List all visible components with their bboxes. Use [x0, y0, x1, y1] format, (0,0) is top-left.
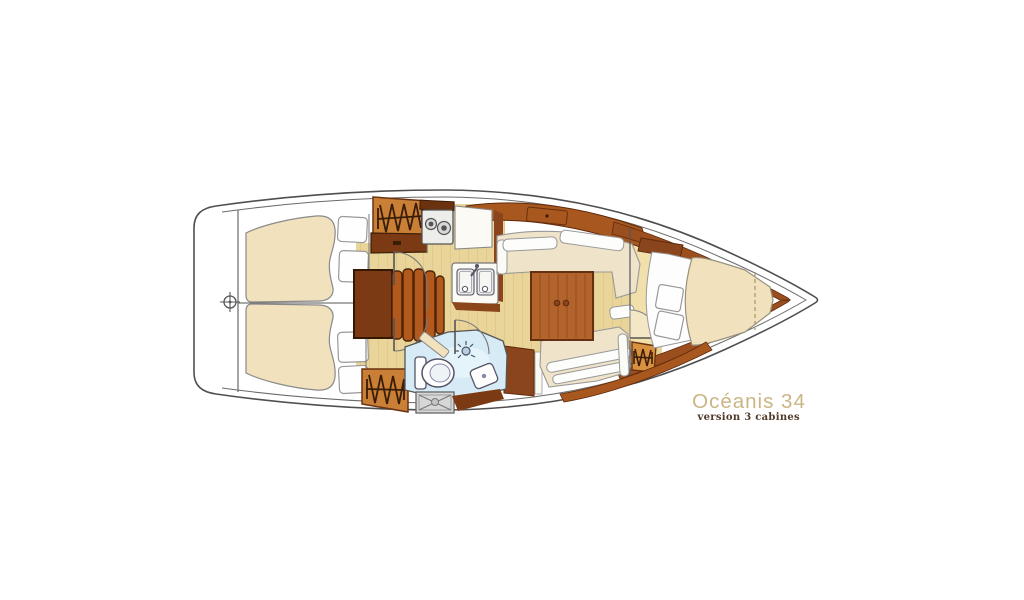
- cabinet-starboard-aft: [504, 346, 534, 396]
- wardrobe-starboard-aft: [362, 369, 408, 412]
- model-title: Océanis 34: [692, 390, 806, 413]
- settee-port-back-cushion: [503, 237, 558, 252]
- stove-icon: [422, 210, 453, 244]
- deck-hatch-icon: [416, 392, 454, 413]
- toilet-icon: [415, 357, 454, 389]
- branding: Océanis 34 version 3 cabines: [692, 390, 806, 423]
- aft-berth-starboard: [246, 304, 335, 390]
- boat-floor-plan-page: Océanis 34 version 3 cabines: [0, 0, 1024, 600]
- galley-counter: [455, 206, 492, 249]
- table-hinge: [563, 300, 569, 306]
- drawer-handle: [393, 241, 401, 245]
- stove-hood: [420, 200, 454, 211]
- vberth-pillow: [655, 284, 684, 312]
- engine-box: [354, 270, 392, 338]
- vberth-pillow: [654, 311, 685, 341]
- oceanis-34-layout-diagram: Océanis 34 version 3 cabines: [0, 0, 1024, 600]
- pillow: [337, 216, 367, 242]
- saloon-table: [531, 272, 593, 340]
- galley-sink-icon: [452, 263, 498, 304]
- wardrobe-port-aft: [371, 197, 427, 253]
- aft-berth-port: [246, 216, 335, 302]
- companionway-steps-icon: [392, 269, 444, 341]
- table-hinge: [554, 300, 560, 306]
- settee-starboard-armrest: [618, 334, 629, 376]
- model-subtitle: version 3 cabines: [697, 412, 801, 423]
